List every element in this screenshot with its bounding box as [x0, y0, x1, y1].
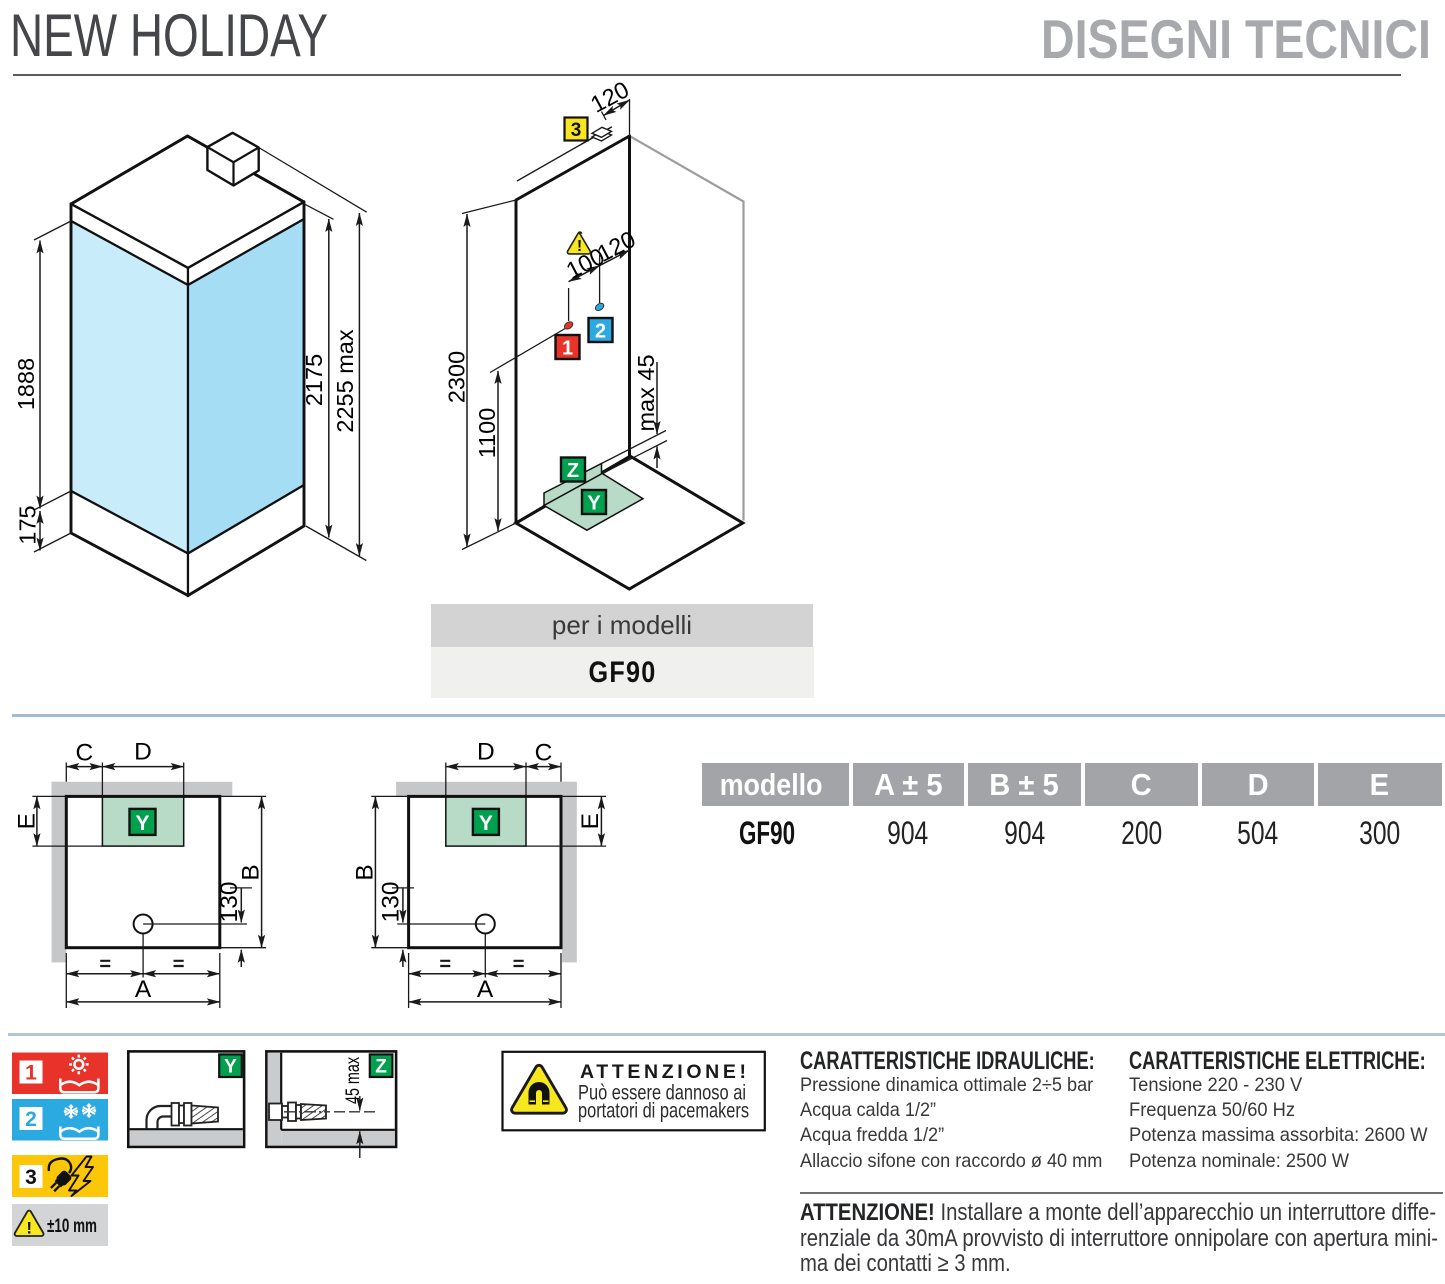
- svg-text:Y: Y: [224, 1057, 237, 1078]
- svg-text:B: B: [238, 864, 265, 880]
- svg-text:Y: Y: [479, 812, 493, 835]
- svg-text:A: A: [135, 976, 152, 1003]
- svg-text:1100: 1100: [474, 408, 500, 459]
- svg-text:2175: 2175: [301, 354, 327, 406]
- svg-text:3: 3: [25, 1166, 37, 1189]
- svg-text:±10 mm: ±10 mm: [47, 1215, 97, 1237]
- svg-text:Z: Z: [567, 460, 579, 482]
- svg-text:2: 2: [595, 321, 606, 343]
- svg-text:2255 max: 2255 max: [332, 329, 358, 432]
- svg-text:!: !: [26, 1219, 32, 1238]
- svg-text:Y: Y: [135, 812, 149, 835]
- svg-text:!: !: [577, 238, 582, 255]
- svg-text:Z: Z: [375, 1057, 387, 1078]
- svg-text:max 45: max 45: [633, 354, 659, 431]
- svg-text:E: E: [15, 813, 41, 829]
- svg-text:3: 3: [571, 120, 582, 141]
- svg-text:2300: 2300: [444, 351, 470, 403]
- svg-text:D: D: [134, 739, 152, 766]
- svg-text:portatori di pacemakers: portatori di pacemakers: [578, 1100, 749, 1123]
- svg-text:Y: Y: [587, 493, 601, 515]
- svg-text:130: 130: [378, 882, 405, 923]
- svg-text:B: B: [352, 864, 379, 880]
- svg-text:45 max: 45 max: [343, 1057, 364, 1104]
- svg-text:1: 1: [562, 338, 573, 360]
- svg-text:C: C: [535, 740, 553, 767]
- svg-text:2: 2: [25, 1108, 37, 1131]
- svg-text:175: 175: [15, 505, 41, 544]
- svg-text:1888: 1888: [13, 358, 39, 410]
- svg-text:D: D: [477, 739, 495, 766]
- svg-text:E: E: [577, 813, 604, 829]
- svg-text:130: 130: [216, 882, 243, 923]
- svg-text:A: A: [477, 976, 494, 1003]
- svg-text:1: 1: [25, 1062, 37, 1085]
- svg-text:C: C: [75, 740, 93, 767]
